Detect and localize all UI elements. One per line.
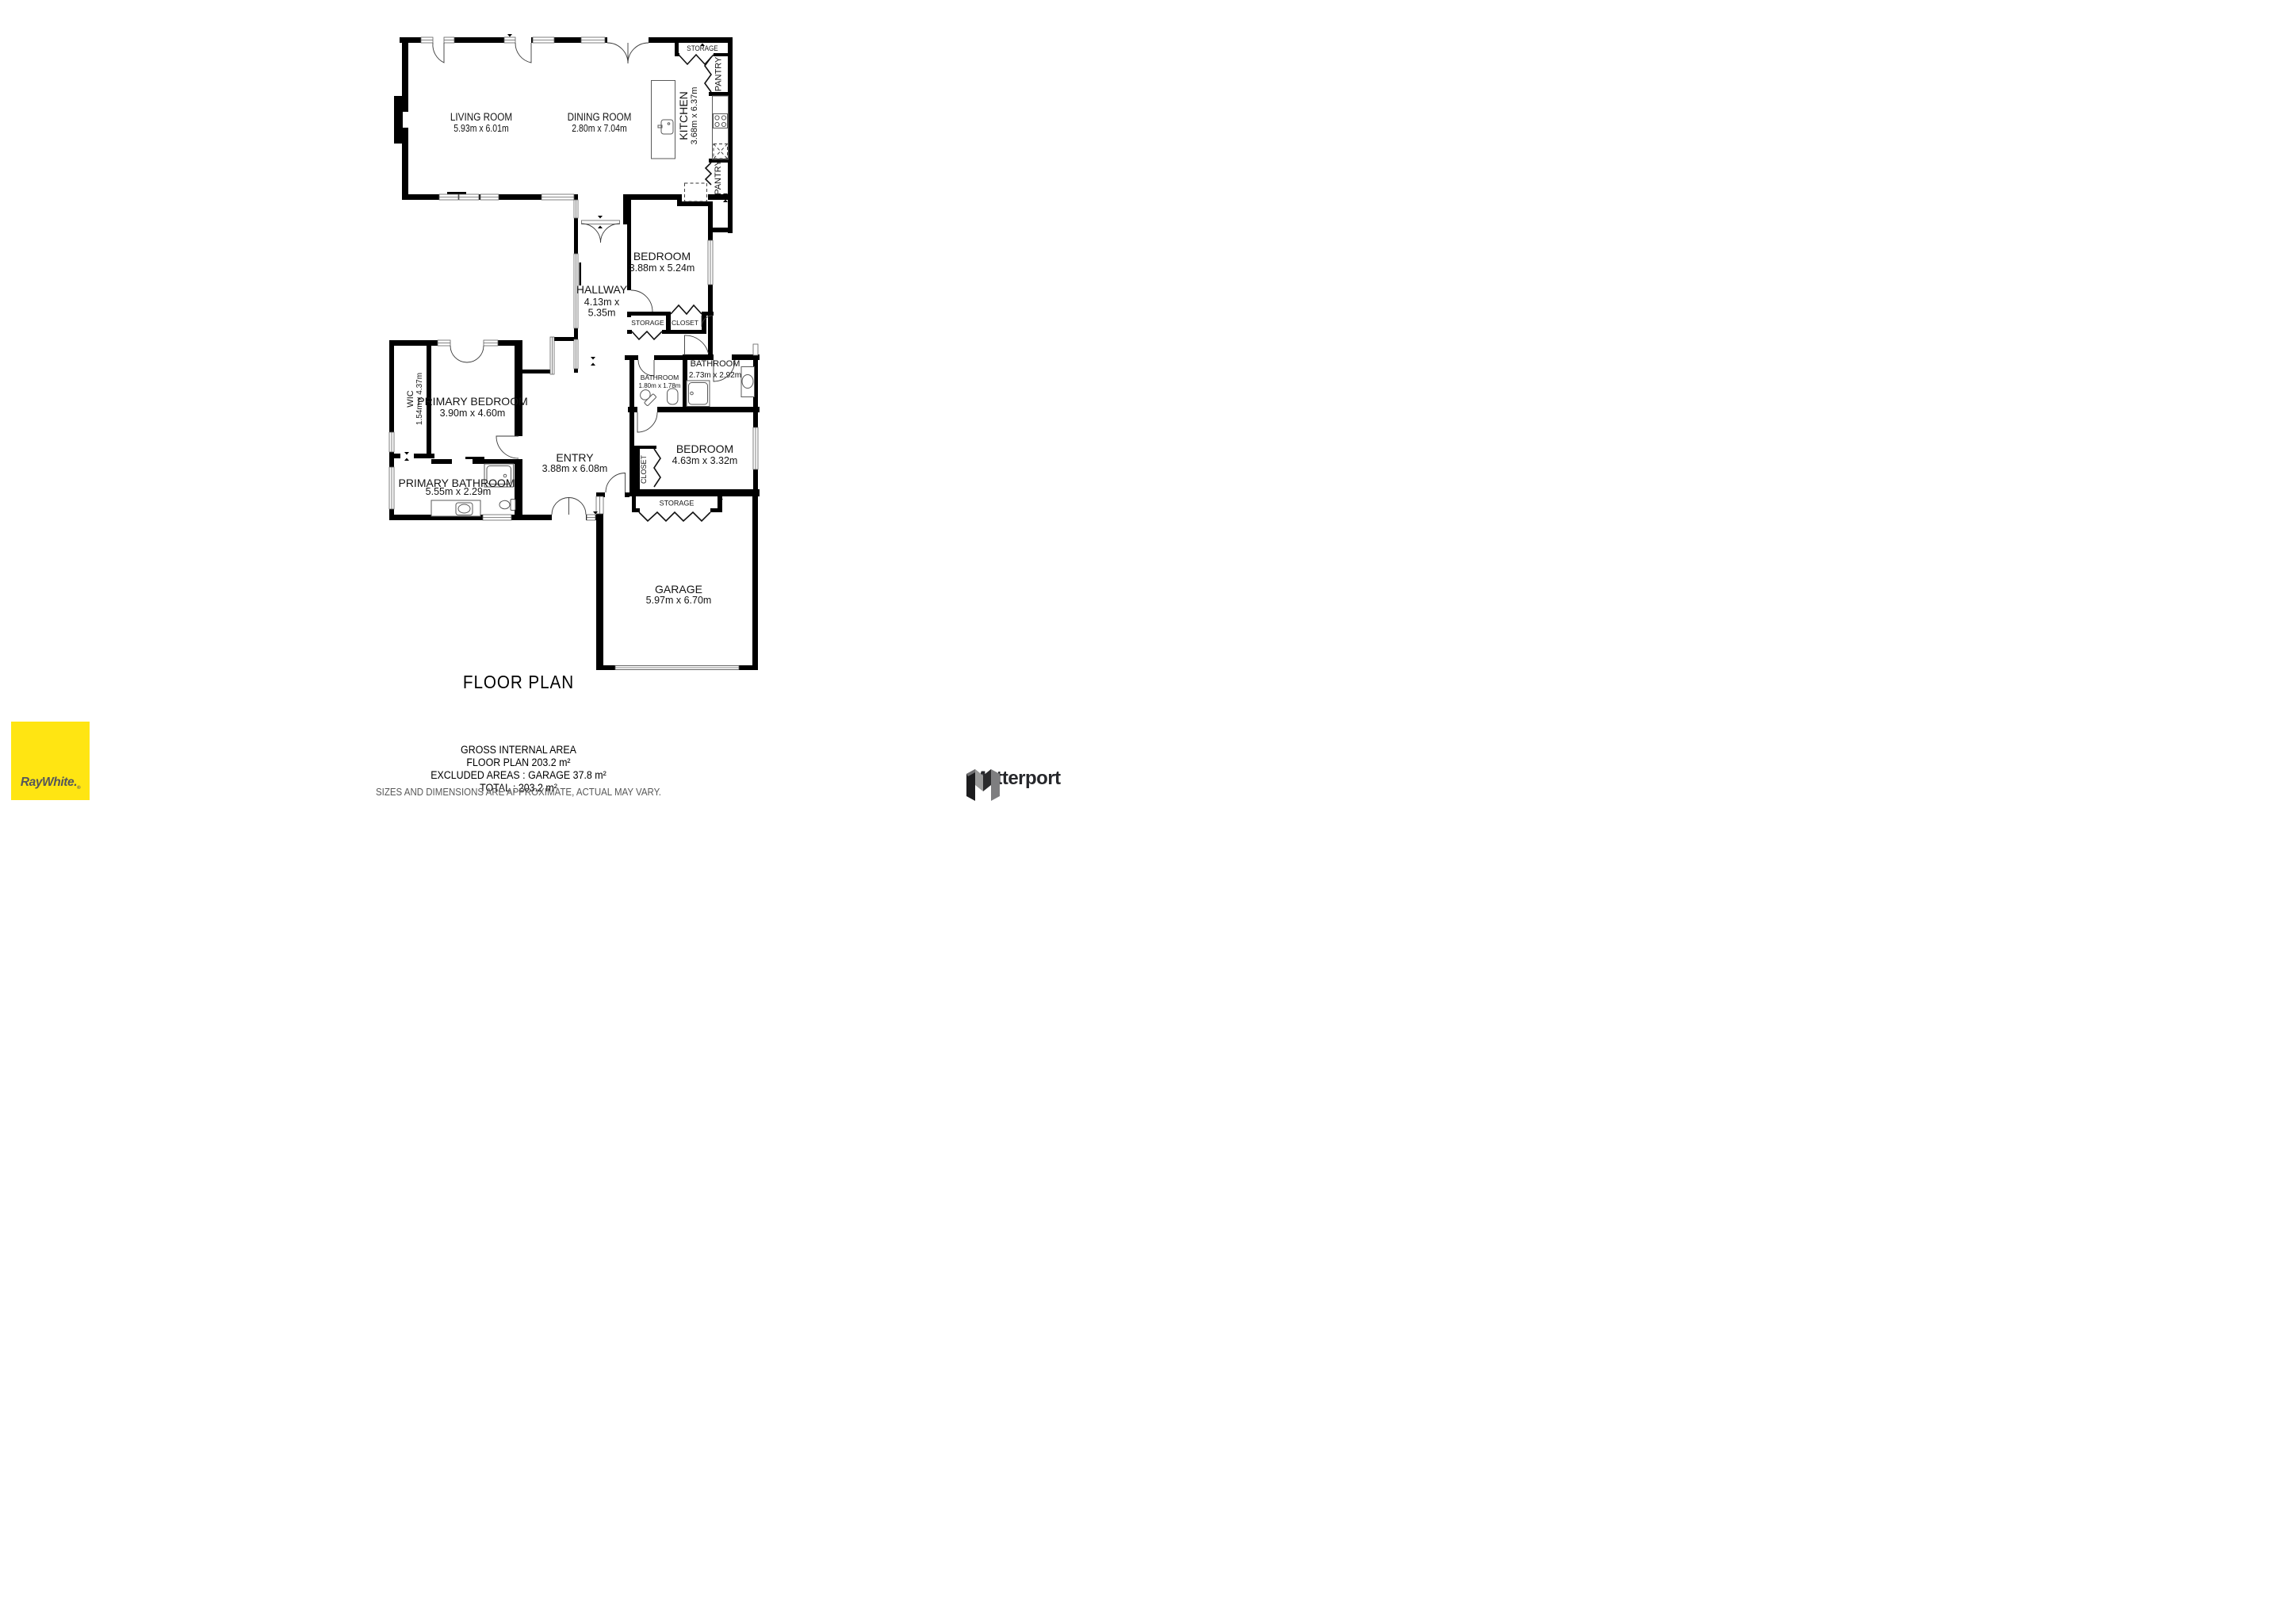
label-entry: ENTRY bbox=[556, 451, 594, 464]
primary-toilet bbox=[499, 500, 515, 511]
dims-entry: 3.88m x 6.08m bbox=[542, 463, 608, 474]
dims-primary-bedroom: 3.90m x 4.60m bbox=[440, 408, 506, 419]
label-living-room: LIVING ROOM bbox=[450, 110, 512, 123]
matterport-logo: Matterport bbox=[965, 768, 1061, 790]
label-primary-bedroom: PRIMARY BEDROOM bbox=[417, 395, 528, 408]
bathroom-shower bbox=[687, 381, 710, 407]
dims-hallway-2: 5.35m bbox=[588, 308, 616, 319]
label-bathroom: BATHROOM bbox=[691, 359, 740, 369]
dishwasher bbox=[714, 144, 728, 159]
floor-plan-page: LIVING ROOM 5.93m x 6.01m DINING ROOM 2.… bbox=[0, 0, 1148, 812]
label-closet-hall: CLOSET bbox=[672, 319, 698, 327]
dims-dining-room: 2.80m x 7.04m bbox=[572, 124, 626, 134]
label-bedroom2: BEDROOM bbox=[676, 442, 733, 455]
label-garage: GARAGE bbox=[655, 583, 702, 596]
dims-bedroom2: 4.63m x 3.32m bbox=[672, 455, 738, 466]
island-sink bbox=[661, 120, 673, 134]
bathroom-vanity bbox=[741, 367, 755, 397]
label-pantry-lower: PANTRY bbox=[714, 160, 723, 195]
gross-internal-area-title: GROSS INTERNAL AREA bbox=[41, 744, 995, 756]
dims-bedroom: 3.88m x 5.24m bbox=[629, 262, 695, 274]
raywhite-logo: RayWhite.® bbox=[11, 722, 90, 800]
page-title: FLOOR PLAN bbox=[52, 672, 985, 693]
dims-garage: 5.97m x 6.70m bbox=[646, 595, 712, 606]
label-storage-hall: STORAGE bbox=[631, 319, 664, 327]
disclaimer-text: SIZES AND DIMENSIONS ARE APPROXIMATE, AC… bbox=[41, 787, 995, 798]
small-bath-toilet bbox=[637, 387, 656, 406]
dims-primary-bathroom: 5.55m x 2.29m bbox=[426, 486, 492, 497]
excluded-areas: EXCLUDED AREAS : GARAGE 37.8 m² bbox=[41, 769, 995, 782]
label-pantry-upper: PANTRY bbox=[714, 56, 724, 91]
small-bath-sink bbox=[668, 389, 679, 404]
label-dining-room: DINING ROOM bbox=[568, 110, 632, 123]
dims-bathroom: 2.73m x 2.92m bbox=[689, 371, 741, 380]
dims-bathroom-small: 1.80m x 1.78m bbox=[639, 382, 681, 389]
label-wic: WIC bbox=[406, 390, 415, 407]
dims-kitchen: 3.68m x 6.37m bbox=[690, 87, 699, 145]
dims-hallway-1: 4.13m x bbox=[584, 297, 620, 308]
fridge bbox=[685, 183, 707, 201]
label-closet-bedroom: CLOSET bbox=[640, 454, 648, 484]
dims-living-room: 5.93m x 6.01m bbox=[453, 124, 508, 134]
primary-vanity bbox=[431, 500, 480, 516]
label-hallway: HALLWAY bbox=[576, 283, 628, 296]
label-kitchen: KITCHEN bbox=[677, 91, 690, 140]
label-storage-garage: STORAGE bbox=[660, 500, 695, 507]
matterport-icon bbox=[965, 768, 1001, 802]
raywhite-wordmark: RayWhite.® bbox=[21, 776, 80, 791]
floor-plan-area: FLOOR PLAN 203.2 m² bbox=[41, 756, 995, 769]
registered-mark: ® bbox=[77, 786, 80, 791]
label-storage-kitchen: STORAGE bbox=[687, 44, 718, 53]
label-bedroom: BEDROOM bbox=[633, 250, 691, 262]
label-bathroom-small: BATHROOM bbox=[641, 373, 679, 381]
room-labels: LIVING ROOM 5.93m x 6.01m DINING ROOM 2.… bbox=[398, 44, 741, 606]
